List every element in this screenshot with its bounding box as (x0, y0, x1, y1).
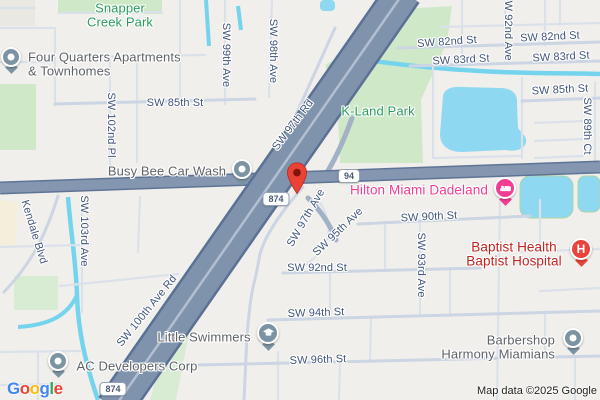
route-shield-94: 94 (338, 169, 360, 183)
poi-label-barbershop-harmony[interactable]: Barbershop Harmony Miamians (441, 334, 555, 361)
poi-line: & Townhomes (28, 64, 181, 78)
street-label-sw-102nd-pl: SW 102nd Pl (105, 92, 117, 157)
poi-label-hilton-miami-dadeland[interactable]: Hilton Miami Dadeland (350, 183, 488, 198)
place-dot-icon (563, 328, 583, 348)
logo-letter: g (40, 379, 50, 398)
google-logo[interactable]: Google (7, 379, 63, 399)
street-label-sw-92nd-st: SW 92nd St (287, 262, 347, 274)
place-dot-icon (48, 351, 68, 371)
route-shield-874-lower: 874 (99, 382, 126, 396)
poi-label-baptist-hospital[interactable]: Baptist Health Baptist Hospital (466, 241, 561, 268)
place-dot-icon (232, 159, 252, 179)
logo-letter: G (7, 379, 20, 398)
k-land-lake (440, 87, 526, 152)
poi-line: Harmony Miamians (441, 347, 555, 361)
street-label-sw-94th-st: SW 94th St (287, 306, 344, 320)
street-label-sw-89th-ct: SW 89th Ct (581, 97, 593, 154)
street-label-sw-92nd-ave: SW 92nd Ave (502, 0, 514, 61)
hotel-pond (520, 176, 573, 218)
poi-line: Baptist Health (466, 241, 561, 255)
poi-line: Baptist Hospital (466, 254, 561, 268)
street-label-sw-99th-ave: SW 99th Ave (220, 23, 232, 88)
street-label-sw-93rd-ave: SW 93rd Ave (415, 232, 427, 297)
poi-line: Creek Park (87, 15, 153, 29)
logo-letter: e (54, 379, 63, 398)
poi-label-little-swimmers[interactable]: Little Swimmers (157, 330, 250, 345)
place-dot-icon (1, 47, 21, 67)
logo-letter: o (30, 379, 40, 398)
poi-label-snapper-creek-park[interactable]: Snapper Creek Park (87, 2, 153, 29)
map-attribution: Map data ©2025 Google (477, 385, 597, 397)
bed-icon (494, 177, 516, 199)
poi-line: Snapper (87, 2, 153, 16)
street-label-sw-98th-ave: SW 98th Ave (267, 19, 279, 84)
logo-letter: o (20, 379, 30, 398)
poi-line: Four Quarters Apartments (28, 51, 181, 65)
poi-label-four-quarters[interactable]: Four Quarters Apartments & Townhomes (28, 51, 181, 78)
poi-label-ac-developers[interactable]: AC Developers Corp (76, 359, 197, 374)
school-icon (257, 322, 279, 344)
street-label-sw-103rd-ave: SW 103rd Ave (78, 195, 90, 266)
map-canvas[interactable]: SW 85th St SW 85th St SW 82nd St SW 82nd… (0, 0, 600, 400)
street-label-sw-96th-st: SW 96th St (289, 353, 346, 367)
poi-line: Barbershop (441, 334, 555, 348)
poi-label-k-land-park[interactable]: K-Land Park (341, 104, 414, 119)
beige-area (0, 200, 18, 249)
hospital-h: H (577, 243, 586, 255)
hospital-icon: H (570, 238, 592, 260)
poi-label-busy-bee-car-wash[interactable]: Busy Bee Car Wash (108, 164, 226, 179)
street-label-sw-85th-st-west: SW 85th St (147, 97, 204, 109)
hotel-pond-2 (578, 176, 600, 212)
destination-marker-icon[interactable] (286, 161, 308, 196)
west-park-area (0, 84, 36, 150)
